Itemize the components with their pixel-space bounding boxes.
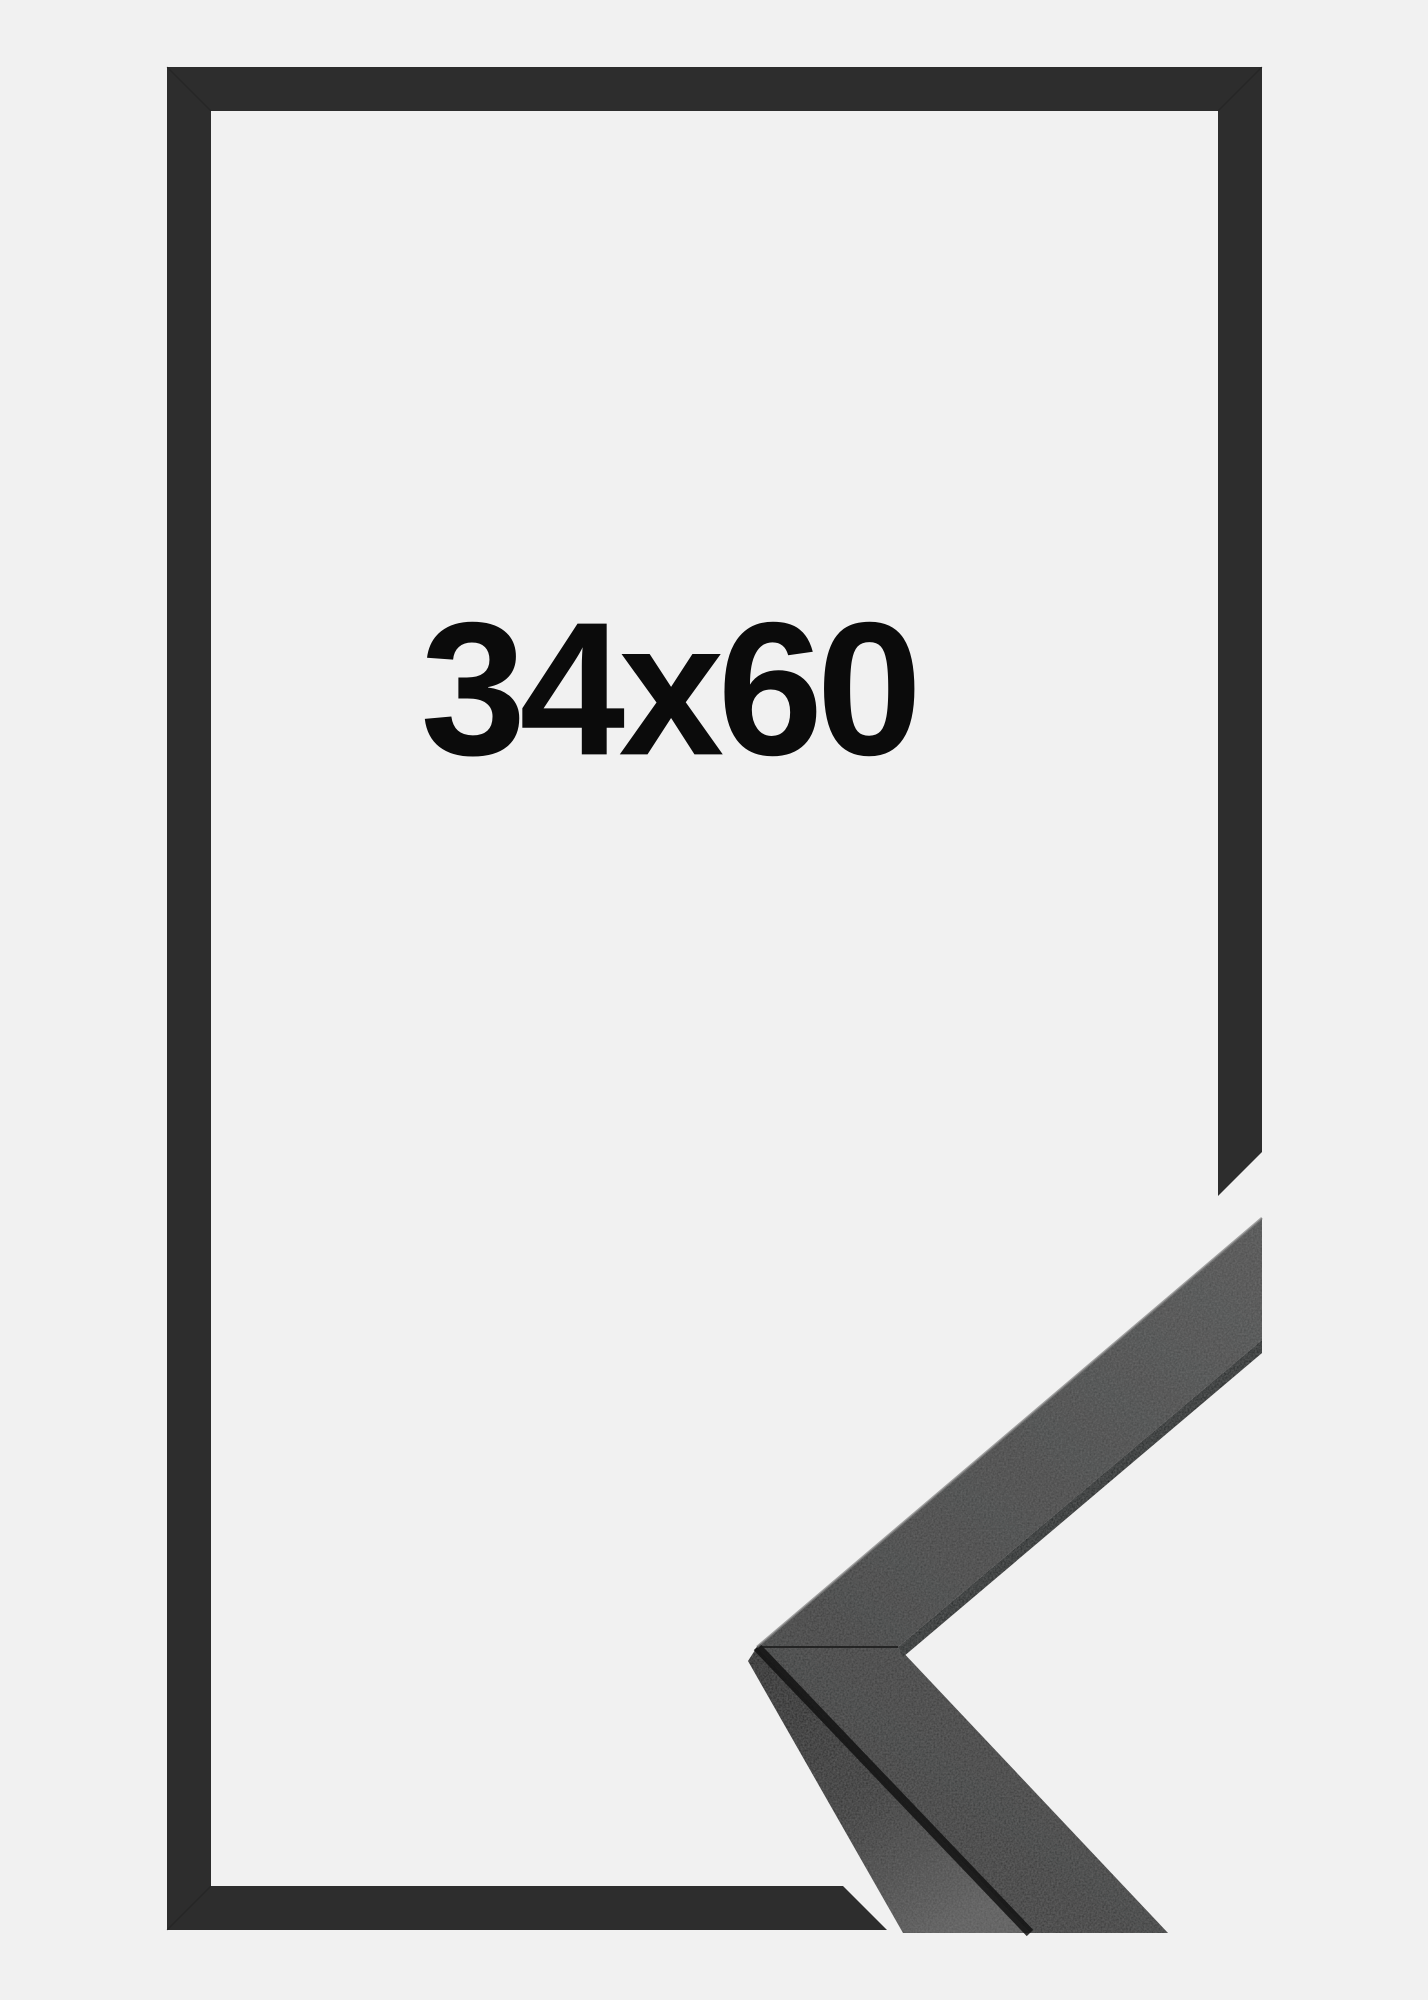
size-label: 34x60 — [420, 594, 915, 784]
corner-sample-front-face — [757, 1218, 1262, 1933]
frame-illustration — [0, 0, 1428, 2000]
frame-product-image: 34x60 — [0, 0, 1428, 2000]
frame-outline-band — [167, 67, 1262, 1930]
corner-sample-edge-highlight — [757, 1218, 1262, 1647]
frame-corner-seams — [167, 67, 1262, 1930]
corner-sample-3d — [748, 1218, 1262, 1933]
